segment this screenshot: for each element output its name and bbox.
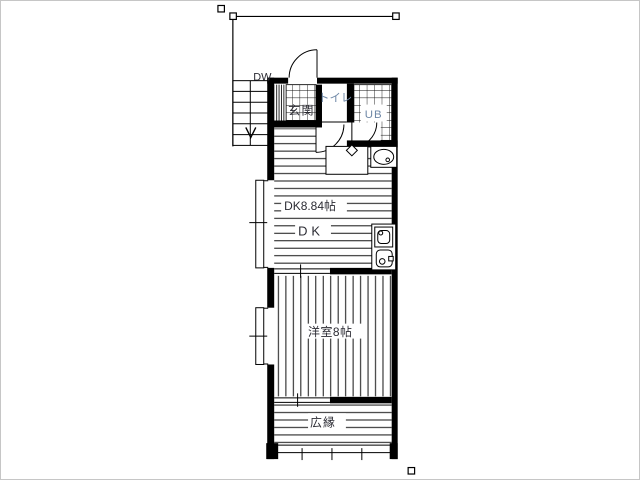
wash-basin-icon xyxy=(374,149,394,164)
dk-area-label: DK8.84帖 xyxy=(284,198,336,213)
selection-handle[interactable] xyxy=(408,468,414,474)
kitchen-sink xyxy=(326,145,368,174)
entrance-step-hatch xyxy=(275,85,286,121)
exterior-stairs xyxy=(233,81,268,146)
entrance-door-arc xyxy=(289,50,317,78)
selection-handle[interactable] xyxy=(393,13,399,19)
western-room-window xyxy=(249,308,268,365)
drawing-canvas: DW 玄関 トイレ UB DK8.84帖 DK 洋室8帖 広縁 xyxy=(0,0,640,480)
kitchen-appliances xyxy=(372,224,396,270)
dk-window xyxy=(249,180,268,268)
selection-handle[interactable] xyxy=(218,5,224,11)
basin-drain-icon xyxy=(386,158,390,162)
entrance-label: 玄関 xyxy=(288,103,315,118)
unit-bath-label: UB xyxy=(365,109,383,121)
selection-handle[interactable] xyxy=(230,13,236,19)
wash-basin xyxy=(371,146,397,167)
dk-label: DK xyxy=(298,224,324,239)
toilet-label: トイレ xyxy=(318,93,352,105)
western-room-label: 洋室8帖 xyxy=(308,324,352,339)
floor-plan-drawing: DW 玄関 トイレ UB DK8.84帖 DK 洋室8帖 広縁 xyxy=(1,1,639,479)
entrance-door xyxy=(289,50,317,78)
veranda-window-wall xyxy=(274,445,392,460)
dw-label: DW xyxy=(253,72,272,84)
veranda-label: 広縁 xyxy=(310,415,336,430)
